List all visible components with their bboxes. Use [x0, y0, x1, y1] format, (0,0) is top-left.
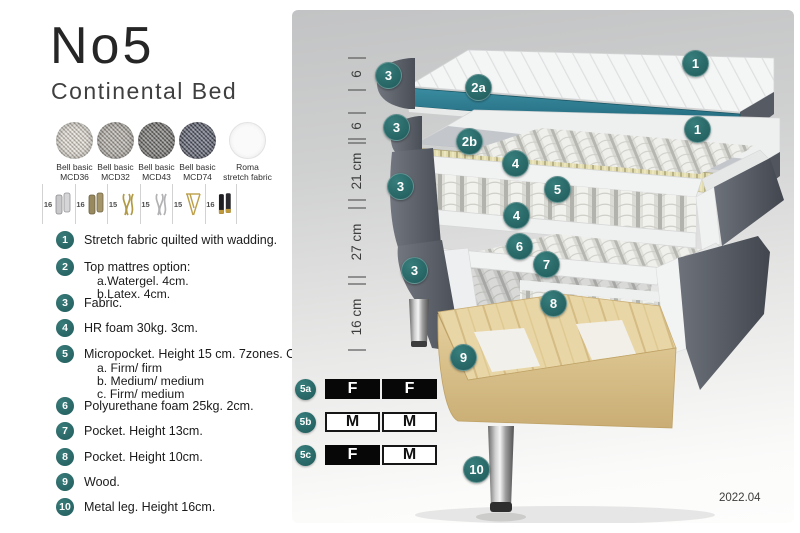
spec-number-badge: 1 — [56, 231, 74, 249]
fabric-swatch: Bell basicMCD36 — [54, 122, 95, 159]
version-stamp: 2022.04 — [719, 492, 761, 504]
spec-text: Top mattres option: — [84, 260, 190, 274]
callout-3: 3 — [401, 257, 428, 284]
firmness-cell: M — [382, 445, 437, 465]
fabric-swatch-circle — [56, 122, 93, 159]
front-metal-leg — [488, 426, 514, 512]
firmness-label-badge: 5a — [295, 379, 316, 400]
callout-3: 3 — [375, 62, 402, 89]
firmness-cell: M — [325, 412, 380, 432]
callout-4: 4 — [502, 150, 529, 177]
leg-option: 15 — [172, 184, 205, 224]
ruler-label: 6 — [349, 70, 364, 78]
spec-text: Fabric. — [84, 296, 122, 310]
ruler-label: 6 — [349, 122, 364, 130]
fabric-swatches: Bell basicMCD36 Bell basicMCD32 Bell bas… — [54, 122, 268, 159]
swatch-code: stretch fabric — [221, 173, 274, 183]
page-title: No5 — [50, 16, 154, 76]
leg-option: 15 — [107, 184, 140, 224]
fabric-swatch: Bell basicMCD43 — [136, 122, 177, 159]
leg-twist-gold-icon — [118, 192, 139, 217]
spec-text: Wood. — [84, 475, 120, 489]
spec-number-badge: 2 — [56, 258, 74, 276]
leg-hairpin-gold-icon — [183, 192, 204, 217]
spec-text: Pocket. Height 13cm. — [84, 424, 203, 438]
firmness-label-badge: 5c — [295, 445, 316, 466]
leg-cylinder-silver-icon — [53, 192, 74, 217]
leg-option: 16 — [75, 184, 108, 224]
spec-item: 1Stretch fabric quilted with wadding. — [56, 231, 277, 249]
spec-number-badge: 3 — [56, 294, 74, 312]
callout-2b: 2b — [456, 128, 483, 155]
spec-text: Metal leg. Height 16cm. — [84, 500, 215, 514]
leg-height: 15 — [141, 200, 151, 209]
firmness-row-5a: 5a F F — [295, 378, 437, 400]
swatch-code: MCD74 — [171, 173, 224, 183]
fabric-swatch-circle — [97, 122, 134, 159]
diagram-panel: 6 6 21 cm 27 cm 16 cm — [292, 10, 794, 523]
leg-cylinder-black-gold-icon — [215, 192, 236, 217]
ruler-label: 27 cm — [349, 224, 364, 261]
spec-number-badge: 4 — [56, 319, 74, 337]
firmness-cell: M — [382, 412, 437, 432]
spec-item: 4HR foam 30kg. 3cm. — [56, 319, 198, 337]
spec-number-badge: 6 — [56, 397, 74, 415]
callout-6: 6 — [506, 233, 533, 260]
firmness-cell: F — [325, 445, 380, 465]
callout-9: 9 — [450, 344, 477, 371]
leg-height: 16 — [76, 200, 86, 209]
leg-height: 16 — [206, 200, 216, 209]
spec-item: 6Polyurethane foam 25kg. 2cm. — [56, 397, 254, 415]
callout-10: 10 — [463, 456, 490, 483]
left-metal-leg — [409, 299, 429, 347]
firmness-row-5b: 5b M M — [295, 411, 437, 433]
spec-subitem: a.Watergel. 4cm. — [97, 274, 189, 288]
firmness-bar: F M — [325, 445, 437, 465]
spec-text: Micropocket. Height 15 cm. 7zones. Optio… — [84, 347, 326, 361]
spec-text: Stretch fabric quilted with wadding. — [84, 233, 277, 247]
fabric-swatch-circle — [179, 122, 216, 159]
firmness-bar: F F — [325, 379, 437, 399]
ruler-label: 16 cm — [349, 299, 364, 336]
callout-3: 3 — [383, 114, 410, 141]
firmness-row-5c: 5c F M — [295, 444, 437, 466]
spec-text: Polyurethane foam 25kg. 2cm. — [84, 399, 254, 413]
leg-option: 16 — [205, 184, 238, 224]
callout-5: 5 — [544, 176, 571, 203]
spec-item: 3Fabric. — [56, 294, 122, 312]
spec-number-badge: 9 — [56, 473, 74, 491]
spec-number-badge: 8 — [56, 448, 74, 466]
spec-number-badge: 7 — [56, 422, 74, 440]
callout-8: 8 — [540, 290, 567, 317]
fabric-swatch: Bell basicMCD32 — [95, 122, 136, 159]
spec-subitem: b. Medium/ medium — [97, 374, 204, 388]
callout-1: 1 — [682, 50, 709, 77]
callout-1: 1 — [684, 116, 711, 143]
leg-twist-silver-icon — [151, 192, 172, 217]
leg-option: 16 — [42, 184, 75, 224]
callout-4: 4 — [503, 202, 530, 229]
ruler-label: 21 cm — [349, 153, 364, 190]
spec-subitem: a. Firm/ firm — [97, 361, 162, 375]
callout-7: 7 — [533, 251, 560, 278]
callout-3: 3 — [387, 173, 414, 200]
firmness-cell: F — [325, 379, 380, 399]
spec-text: Pocket. Height 10cm. — [84, 450, 203, 464]
fabric-swatch-circle — [229, 122, 266, 159]
firmness-label-badge: 5b — [295, 412, 316, 433]
spec-number-badge: 10 — [56, 498, 74, 516]
leg-cylinder-bronze-icon — [86, 192, 107, 217]
spec-item: 8Pocket. Height 10cm. — [56, 448, 203, 466]
spec-item: 10Metal leg. Height 16cm. — [56, 498, 215, 516]
firmness-cell: F — [382, 379, 437, 399]
spec-text: HR foam 30kg. 3cm. — [84, 321, 198, 335]
spec-number-badge: 5 — [56, 345, 74, 363]
leg-height: 15 — [173, 200, 183, 209]
spec-item: 9Wood. — [56, 473, 120, 491]
leg-height: 16 — [43, 200, 53, 209]
fabric-swatch: Bell basicMCD74 — [177, 122, 218, 159]
callout-2a: 2a — [465, 74, 492, 101]
leg-options: 16 16 15 15 15 16 — [42, 184, 237, 224]
fabric-swatch-circle — [138, 122, 175, 159]
spec-item: 7Pocket. Height 13cm. — [56, 422, 203, 440]
firmness-bar: M M — [325, 412, 437, 432]
leg-height: 15 — [108, 200, 118, 209]
page-subtitle: Continental Bed — [51, 78, 237, 105]
leg-option: 15 — [140, 184, 173, 224]
fabric-swatch: Romastretch fabric — [227, 122, 268, 159]
